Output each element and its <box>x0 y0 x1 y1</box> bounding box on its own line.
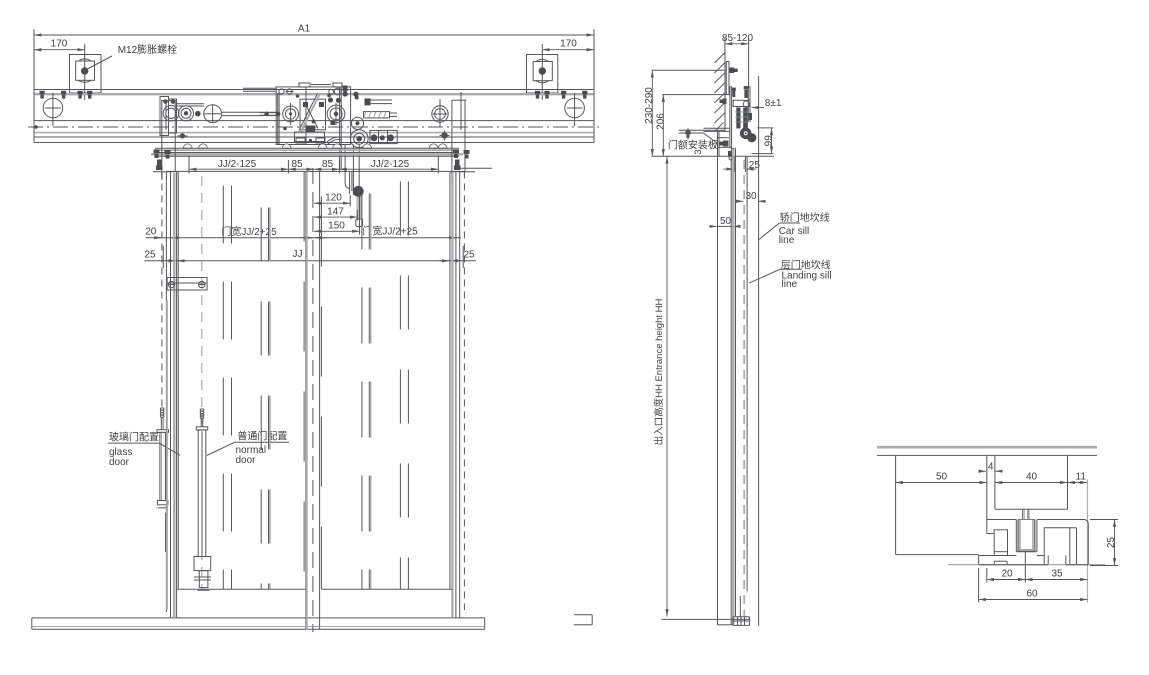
svg-text:20: 20 <box>1001 569 1013 580</box>
svg-text:85-120: 85-120 <box>722 33 754 44</box>
svg-text:120: 120 <box>325 193 342 204</box>
svg-text:出入口高度HH Entrance height HH: 出入口高度HH Entrance height HH <box>653 298 665 445</box>
svg-text:60: 60 <box>1026 589 1038 600</box>
svg-text:JJ/2-125: JJ/2-125 <box>371 159 410 170</box>
svg-text:11: 11 <box>1076 472 1087 483</box>
svg-text:door: door <box>109 457 130 468</box>
svg-text:door: door <box>236 455 257 466</box>
svg-text:line: line <box>779 235 795 246</box>
svg-text:JJ: JJ <box>293 249 303 260</box>
svg-text:普通门配置: 普通门配置 <box>237 430 287 443</box>
svg-text:25: 25 <box>1106 537 1117 549</box>
svg-text:99: 99 <box>764 135 775 147</box>
svg-text:150: 150 <box>328 221 345 232</box>
svg-text:230-290: 230-290 <box>644 87 655 124</box>
svg-text:40: 40 <box>1026 472 1038 483</box>
svg-text:25: 25 <box>463 250 475 261</box>
svg-text:35: 35 <box>1051 569 1063 580</box>
svg-text:8±1: 8±1 <box>765 98 782 109</box>
svg-text:line: line <box>782 279 798 290</box>
svg-text:206: 206 <box>656 113 667 130</box>
svg-text:170: 170 <box>560 39 577 50</box>
svg-text:玻璃门配置: 玻璃门配置 <box>109 431 159 444</box>
svg-text:A1: A1 <box>298 24 311 35</box>
svg-text:3: 3 <box>693 149 704 154</box>
svg-text:4: 4 <box>988 462 994 473</box>
svg-text:M12膨胀螺栓: M12膨胀螺栓 <box>118 43 177 56</box>
svg-text:85: 85 <box>291 159 303 170</box>
svg-text:20: 20 <box>145 227 157 238</box>
svg-text:JJ/2-125: JJ/2-125 <box>218 159 257 170</box>
svg-text:147: 147 <box>327 206 344 217</box>
svg-text:50: 50 <box>936 472 948 483</box>
svg-text:170: 170 <box>51 39 68 50</box>
svg-text:85: 85 <box>322 159 334 170</box>
svg-text:轿门地坎线: 轿门地坎线 <box>780 211 830 224</box>
svg-text:50: 50 <box>720 216 732 227</box>
svg-text:25: 25 <box>144 250 156 261</box>
